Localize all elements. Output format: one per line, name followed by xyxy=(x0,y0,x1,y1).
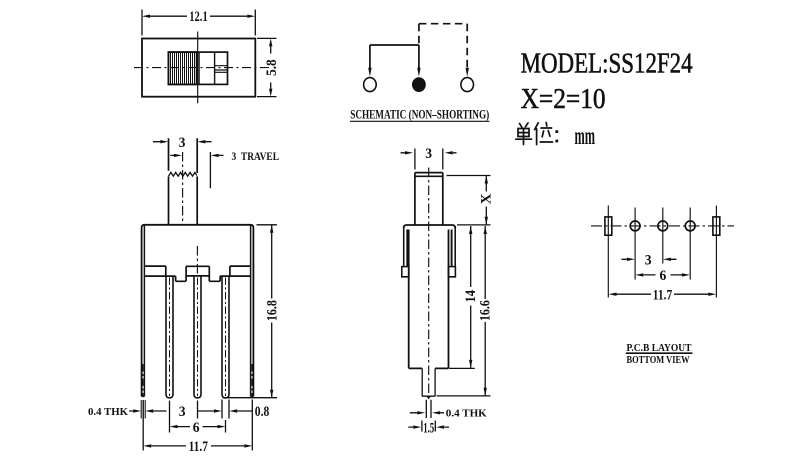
svg-text:1.5: 1.5 xyxy=(423,420,434,436)
svg-text:11.7: 11.7 xyxy=(189,439,209,455)
svg-text:12.1: 12.1 xyxy=(189,9,207,25)
svg-text:X: X xyxy=(479,193,495,204)
svg-text:0.8: 0.8 xyxy=(255,404,269,420)
svg-text:3: 3 xyxy=(179,404,186,420)
svg-text:0.4 THK: 0.4 THK xyxy=(88,406,128,418)
svg-text:mm: mm xyxy=(575,123,596,150)
svg-text:16.8: 16.8 xyxy=(264,300,280,321)
svg-text:3 TRAVEL: 3 TRAVEL xyxy=(232,151,280,163)
svg-text:5.8: 5.8 xyxy=(264,59,280,76)
svg-text:P.C.B LAYOUT: P.C.B LAYOUT xyxy=(627,342,693,354)
svg-text:6: 6 xyxy=(193,420,200,436)
svg-text:3: 3 xyxy=(645,253,652,269)
svg-text:16.6: 16.6 xyxy=(478,300,494,321)
svg-text:MODEL:SS12F24: MODEL:SS12F24 xyxy=(521,49,693,80)
svg-text:11.7: 11.7 xyxy=(653,287,673,303)
svg-text:3: 3 xyxy=(425,146,432,162)
svg-text:6: 6 xyxy=(660,268,667,284)
svg-text:14: 14 xyxy=(463,290,479,303)
svg-text:SCHEMATIC (NON–SHORTING): SCHEMATIC (NON–SHORTING) xyxy=(350,108,489,122)
svg-text:3: 3 xyxy=(179,135,186,151)
svg-text:X=2=10: X=2=10 xyxy=(521,84,606,115)
svg-text:BOTTOM VIEW: BOTTOM VIEW xyxy=(627,354,690,366)
svg-text:0.4 THK: 0.4 THK xyxy=(446,408,487,420)
